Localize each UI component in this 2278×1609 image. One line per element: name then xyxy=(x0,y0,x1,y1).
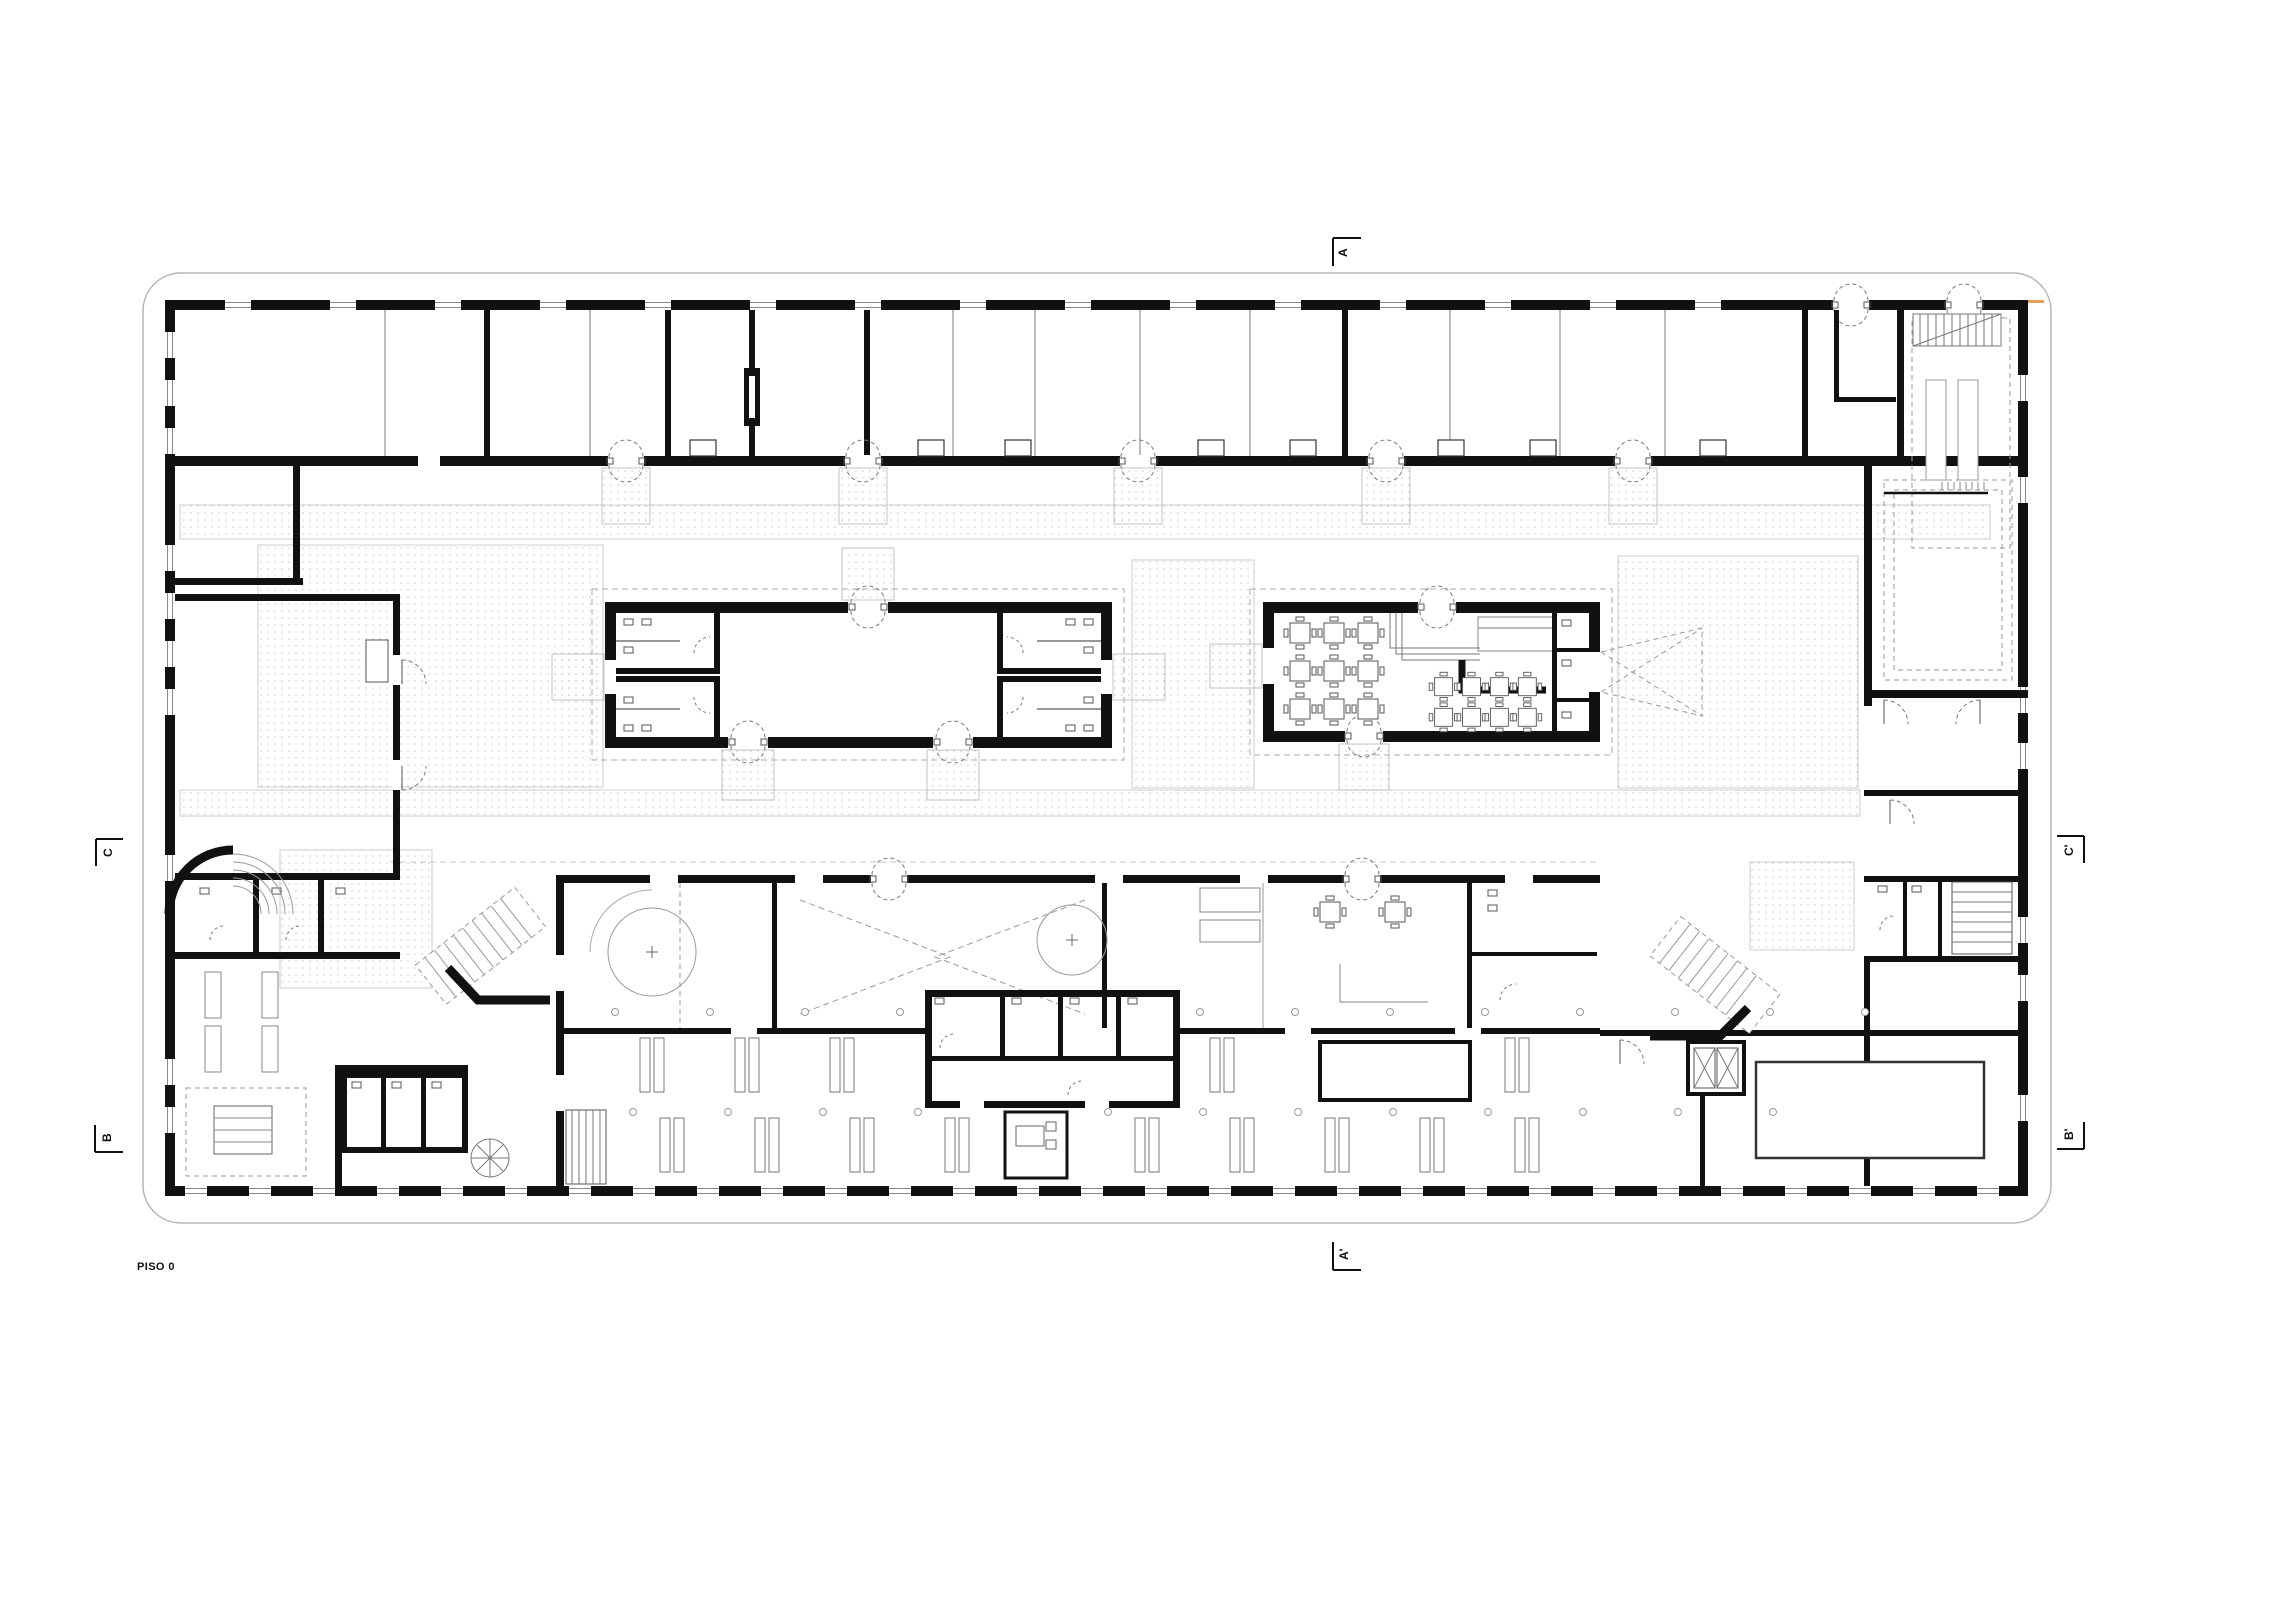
section-label-a-prime: A' xyxy=(1337,1248,1351,1260)
plan-title: PISO 0 xyxy=(137,1261,175,1273)
section-marker-a-top: A xyxy=(1333,238,1361,266)
stair-treads-icon xyxy=(566,1110,606,1184)
floor-plan-drawing: A A' C B C' B' xyxy=(0,0,2278,1609)
elevator-x-icon xyxy=(1688,1042,1744,1094)
spiral-stair-icon xyxy=(471,1139,509,1177)
section-marker-c-right: C' xyxy=(2057,836,2084,863)
section-label-b: B xyxy=(100,1133,114,1142)
drawing-sheet: A A' C B C' B' PISO 0 xyxy=(0,0,2278,1609)
section-marker-b-left: B xyxy=(95,1125,123,1152)
section-label-c: C xyxy=(101,848,115,857)
storage-hall xyxy=(1756,1062,1984,1158)
section-label-b-prime: B' xyxy=(2062,1128,2076,1140)
small-office xyxy=(1005,1112,1067,1178)
section-marker-c-left: C xyxy=(96,839,123,866)
stair-treads-icon xyxy=(1913,314,2001,346)
window-gaps-bottom xyxy=(185,1185,1999,1198)
section-marker-b-right: B' xyxy=(2057,1122,2084,1149)
section-label-a: A xyxy=(1336,248,1350,257)
right-wing-stair xyxy=(1952,882,2012,954)
section-label-c-prime: C' xyxy=(2062,844,2076,856)
cold-room xyxy=(1320,1042,1470,1100)
section-marker-a-bottom: A' xyxy=(1333,1242,1361,1270)
